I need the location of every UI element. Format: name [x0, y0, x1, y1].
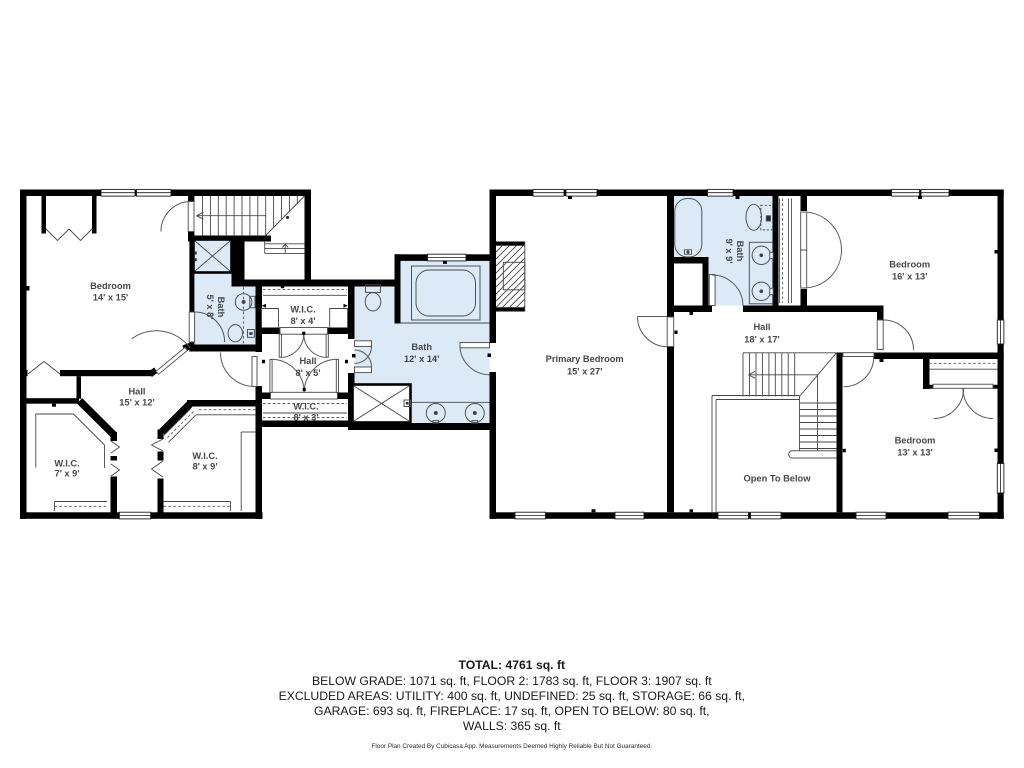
svg-text:Hall: Hall: [753, 322, 770, 332]
svg-text:18' x 17': 18' x 17': [744, 335, 779, 345]
svg-text:GARAGE: 693 sq. ft, FIREPLACE:: GARAGE: 693 sq. ft, FIREPLACE: 17 sq. ft…: [314, 704, 710, 718]
svg-text:7' x 9': 7' x 9': [54, 469, 79, 479]
svg-text:W.I.C.: W.I.C.: [54, 458, 79, 468]
svg-text:13' x 13': 13' x 13': [897, 448, 932, 458]
svg-text:BELOW GRADE: 1071 sq. ft, FLOO: BELOW GRADE: 1071 sq. ft, FLOOR 2: 1783 …: [312, 674, 712, 688]
svg-text:Hall: Hall: [128, 387, 145, 397]
svg-text:W.I.C.: W.I.C.: [192, 451, 217, 461]
svg-text:Hall: Hall: [299, 356, 316, 366]
svg-text:8' x 9': 8' x 9': [192, 462, 217, 472]
svg-text:WALLS: 365 sq. ft: WALLS: 365 sq. ft: [463, 719, 561, 733]
svg-text:8' x 4': 8' x 4': [290, 316, 315, 326]
svg-text:W.I.C.: W.I.C.: [290, 305, 315, 315]
svg-text:5' x 8': 5' x 8': [205, 294, 215, 319]
svg-text:Bedroom: Bedroom: [889, 260, 930, 270]
svg-text:Open To Below: Open To Below: [744, 474, 812, 484]
svg-text:Bath: Bath: [216, 297, 226, 318]
svg-text:9' x 9': 9' x 9': [724, 238, 734, 263]
svg-text:15' x 27': 15' x 27': [567, 366, 602, 376]
svg-text:Primary Bedroom: Primary Bedroom: [546, 354, 624, 364]
svg-text:Bath: Bath: [735, 241, 745, 262]
svg-text:15' x 12': 15' x 12': [119, 398, 154, 408]
svg-text:TOTAL: 4761 sq. ft: TOTAL: 4761 sq. ft: [459, 658, 566, 672]
svg-text:W.I.C.: W.I.C.: [293, 402, 318, 412]
svg-text:Bedroom: Bedroom: [895, 436, 936, 446]
svg-text:Floor Plan Created By Cubicasa: Floor Plan Created By Cubicasa App. Meas…: [371, 743, 652, 750]
svg-text:8' x 3': 8' x 3': [293, 413, 318, 423]
svg-text:Bath: Bath: [411, 342, 432, 352]
svg-text:12' x 14': 12' x 14': [404, 354, 439, 364]
svg-text:EXCLUDED AREAS: UTILITY: 400 s: EXCLUDED AREAS: UTILITY: 400 sq. ft, UND…: [279, 689, 745, 703]
svg-text:14' x 15': 14' x 15': [93, 293, 128, 303]
svg-text:Bedroom: Bedroom: [90, 281, 131, 291]
svg-text:8' x 5': 8' x 5': [295, 368, 320, 378]
svg-text:16' x 13': 16' x 13': [892, 272, 927, 282]
